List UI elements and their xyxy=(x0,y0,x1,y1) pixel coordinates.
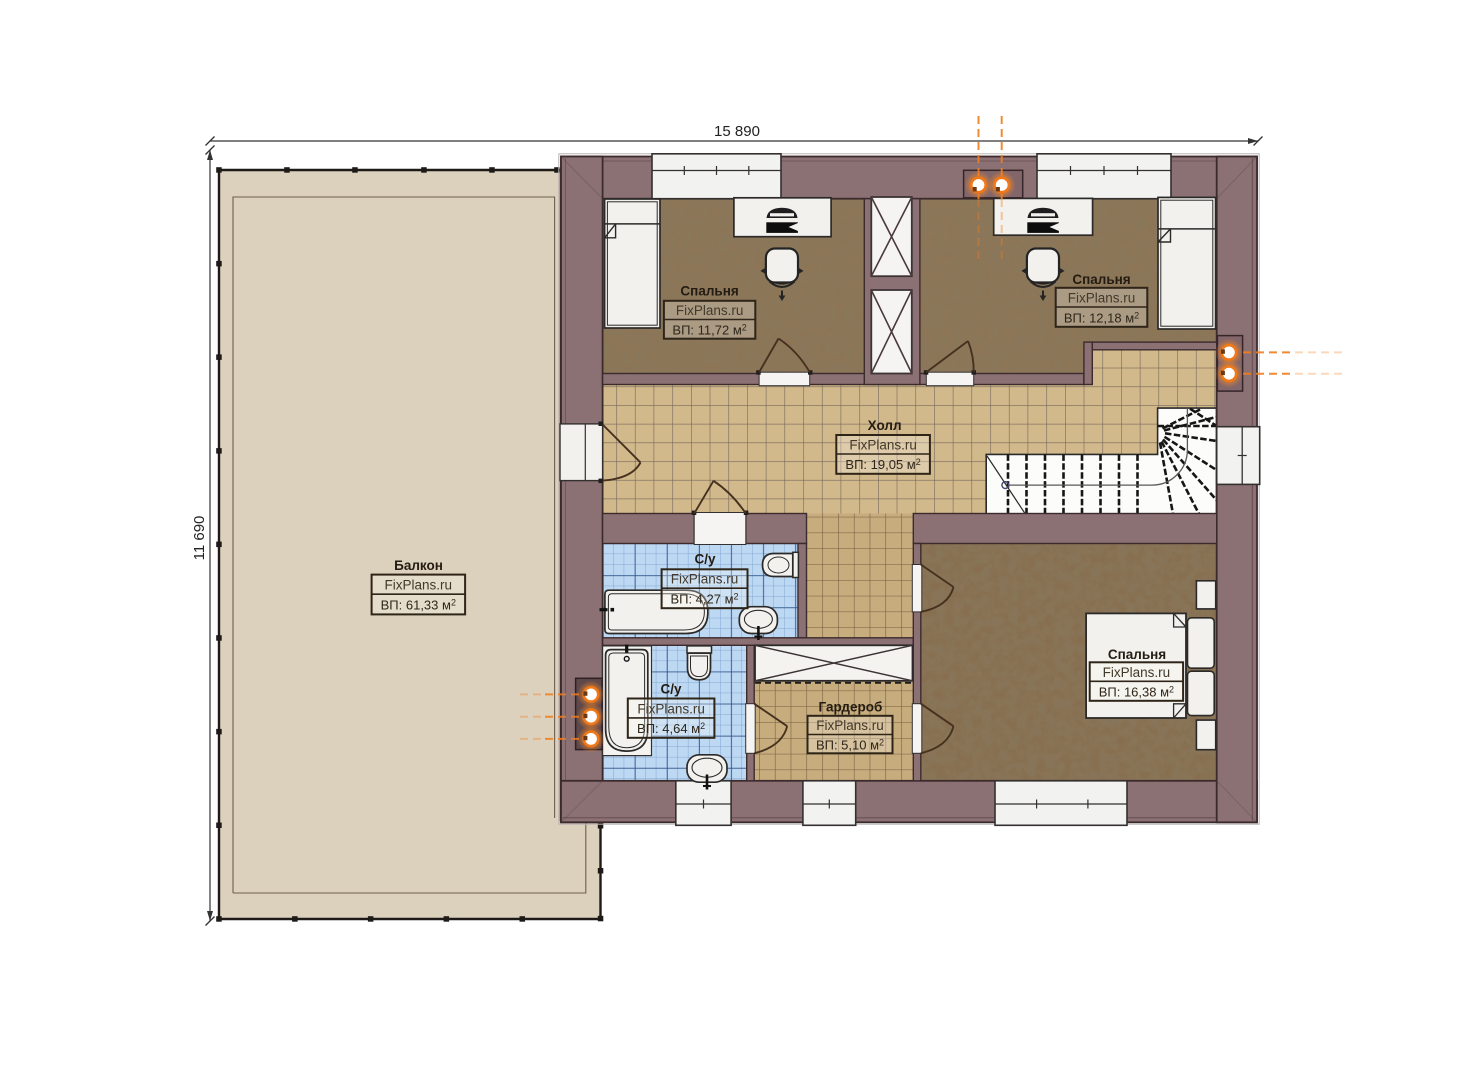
svg-text:ВП: 5,10 м2: ВП: 5,10 м2 xyxy=(816,738,884,753)
svg-text:15 890: 15 890 xyxy=(714,123,760,140)
svg-text:FixPlans.ru: FixPlans.ru xyxy=(671,572,739,587)
svg-text:FixPlans.ru: FixPlans.ru xyxy=(816,718,884,733)
svg-text:11 690: 11 690 xyxy=(191,516,208,561)
svg-text:Спальня: Спальня xyxy=(680,284,738,299)
svg-text:ВП: 4,64 м2: ВП: 4,64 м2 xyxy=(637,721,705,736)
svg-text:Гардероб: Гардероб xyxy=(818,700,882,715)
svg-text:FixPlans.ru: FixPlans.ru xyxy=(637,701,705,716)
svg-text:ВП: 11,72 м2: ВП: 11,72 м2 xyxy=(672,323,746,338)
svg-text:ВП: 4,27 м2: ВП: 4,27 м2 xyxy=(670,592,738,607)
svg-text:FixPlans.ru: FixPlans.ru xyxy=(849,438,917,453)
svg-text:ВП: 12,18 м2: ВП: 12,18 м2 xyxy=(1064,311,1139,326)
svg-text:Спальня: Спальня xyxy=(1108,647,1166,662)
svg-text:Холл: Холл xyxy=(868,418,902,433)
svg-text:FixPlans.ru: FixPlans.ru xyxy=(1068,291,1136,306)
svg-text:FixPlans.ru: FixPlans.ru xyxy=(676,303,744,318)
svg-text:ВП: 19,05 м2: ВП: 19,05 м2 xyxy=(845,457,920,472)
svg-text:Спальня: Спальня xyxy=(1072,272,1130,287)
svg-text:FixPlans.ru: FixPlans.ru xyxy=(385,578,453,593)
svg-text:FixPlans.ru: FixPlans.ru xyxy=(1103,665,1171,680)
svg-text:Балкон: Балкон xyxy=(394,558,443,573)
svg-text:С/у: С/у xyxy=(694,552,716,567)
svg-text:ВП: 61,33 м2: ВП: 61,33 м2 xyxy=(381,598,456,613)
svg-text:ВП: 16,38 м2: ВП: 16,38 м2 xyxy=(1099,684,1174,699)
svg-text:С/у: С/у xyxy=(660,682,682,697)
